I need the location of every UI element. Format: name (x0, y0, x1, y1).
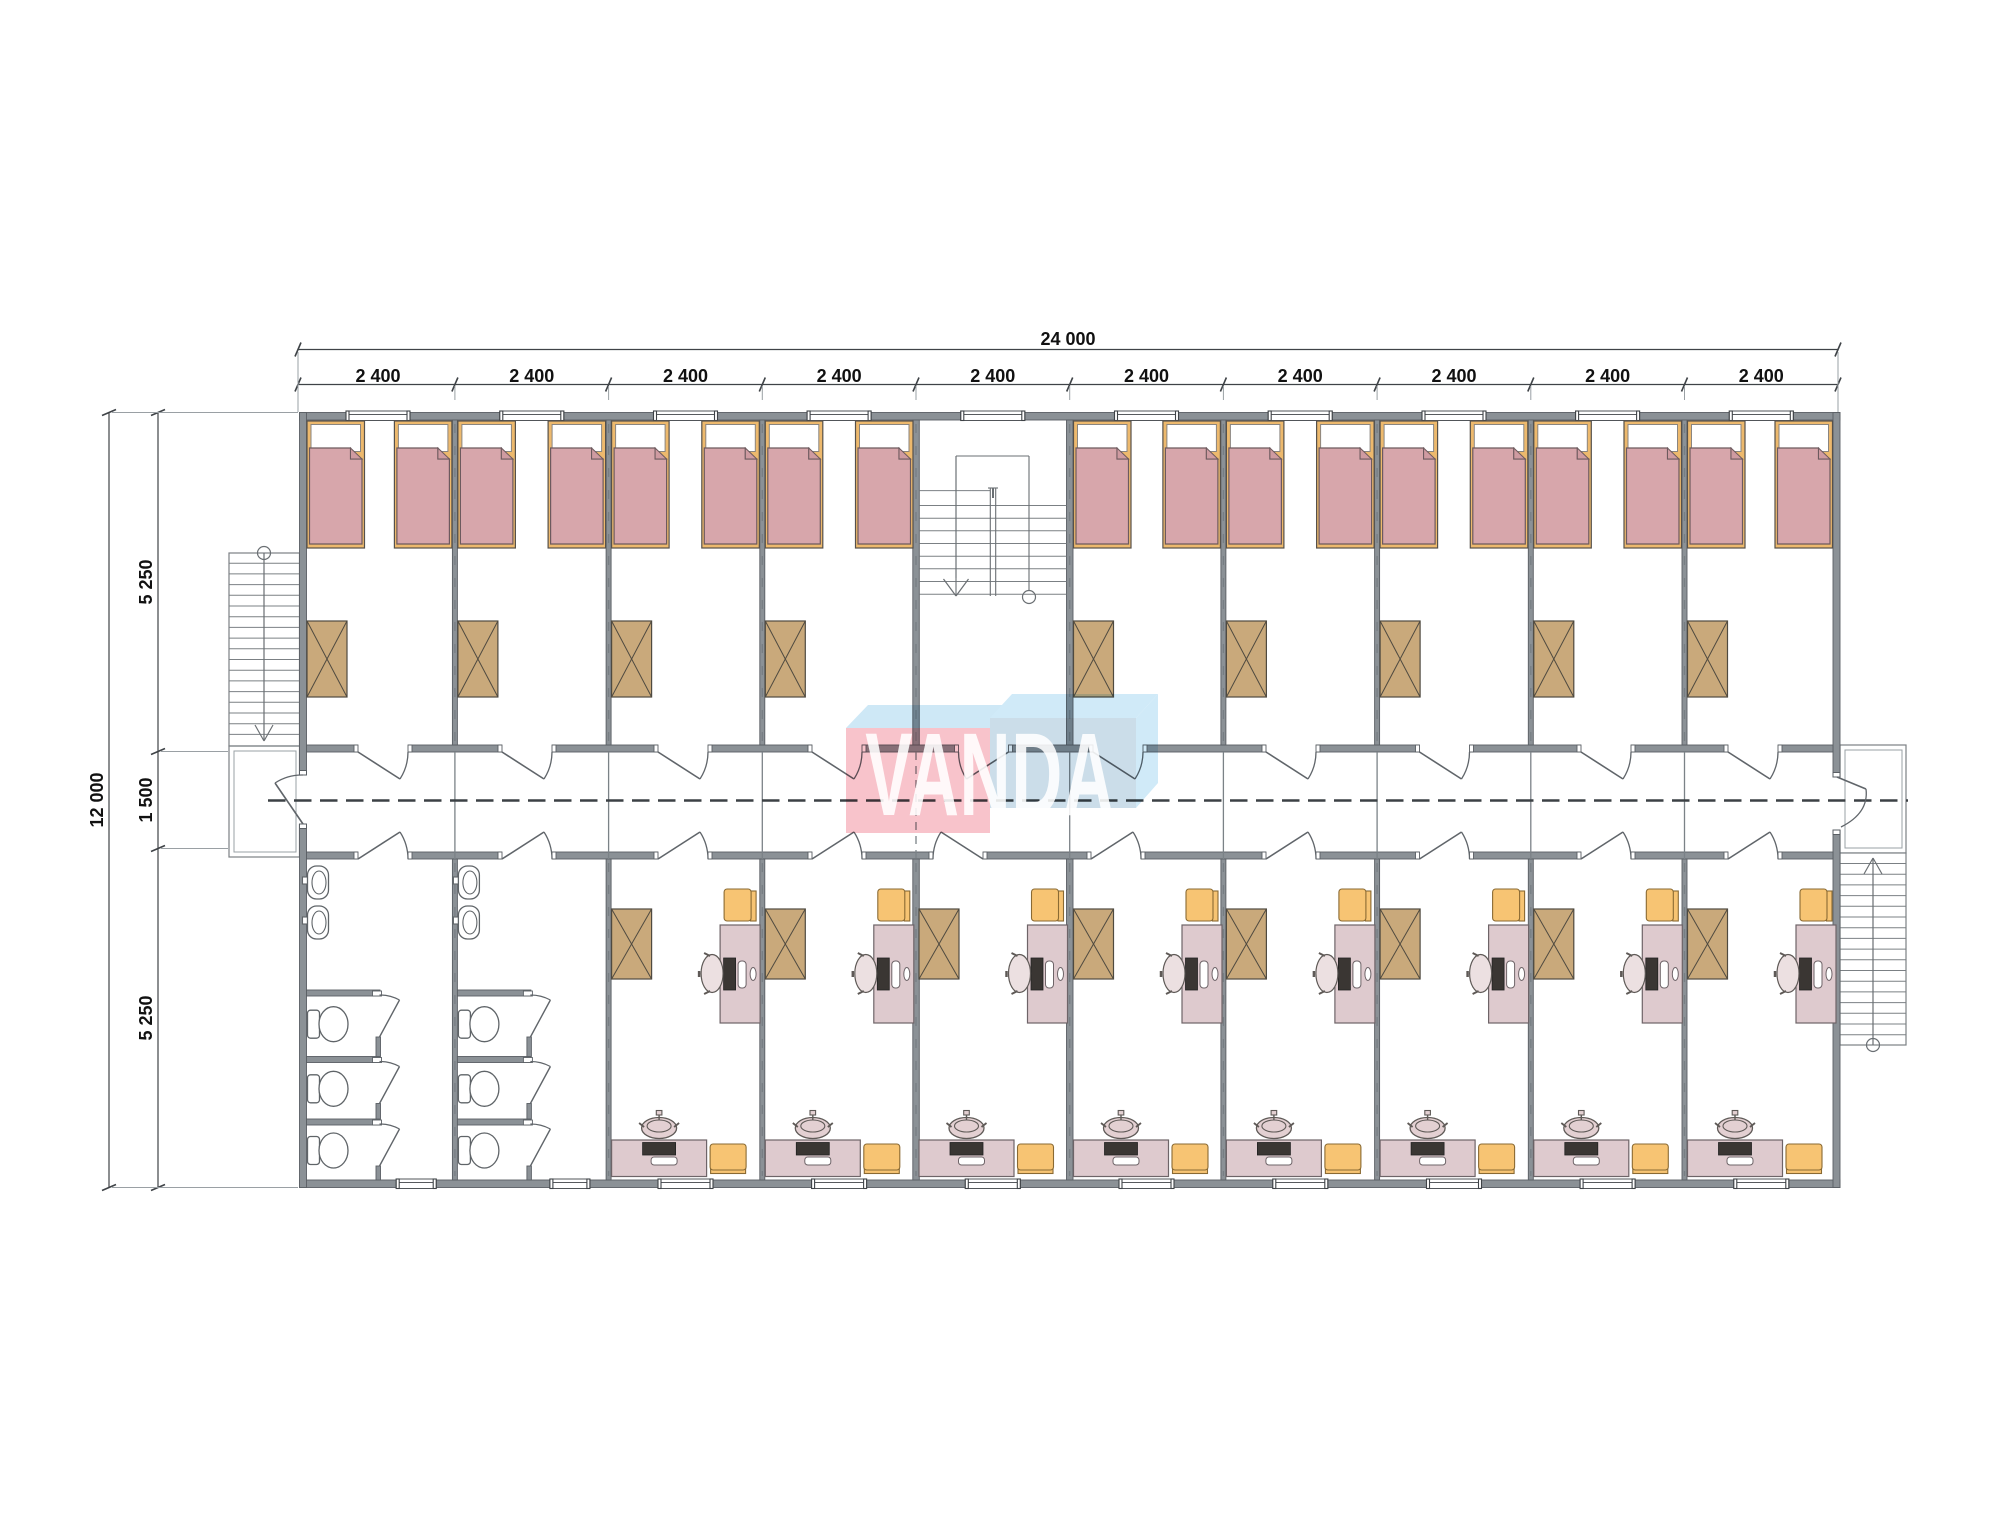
svg-text:2 400: 2 400 (1278, 366, 1323, 386)
svg-text:2 400: 2 400 (817, 366, 862, 386)
svg-text:5 250: 5 250 (136, 559, 156, 604)
svg-text:2 400: 2 400 (1124, 366, 1169, 386)
svg-text:5 250: 5 250 (136, 995, 156, 1040)
svg-text:2 400: 2 400 (509, 366, 554, 386)
svg-text:24 000: 24 000 (1040, 329, 1095, 349)
svg-text:VANDA: VANDA (865, 708, 1114, 840)
svg-text:2 400: 2 400 (1431, 366, 1476, 386)
svg-text:2 400: 2 400 (970, 366, 1015, 386)
svg-text:2 400: 2 400 (1739, 366, 1784, 386)
svg-text:12 000: 12 000 (87, 772, 107, 827)
svg-text:2 400: 2 400 (1585, 366, 1630, 386)
svg-text:1 500: 1 500 (136, 777, 156, 822)
svg-text:2 400: 2 400 (663, 366, 708, 386)
svg-text:2 400: 2 400 (355, 366, 400, 386)
